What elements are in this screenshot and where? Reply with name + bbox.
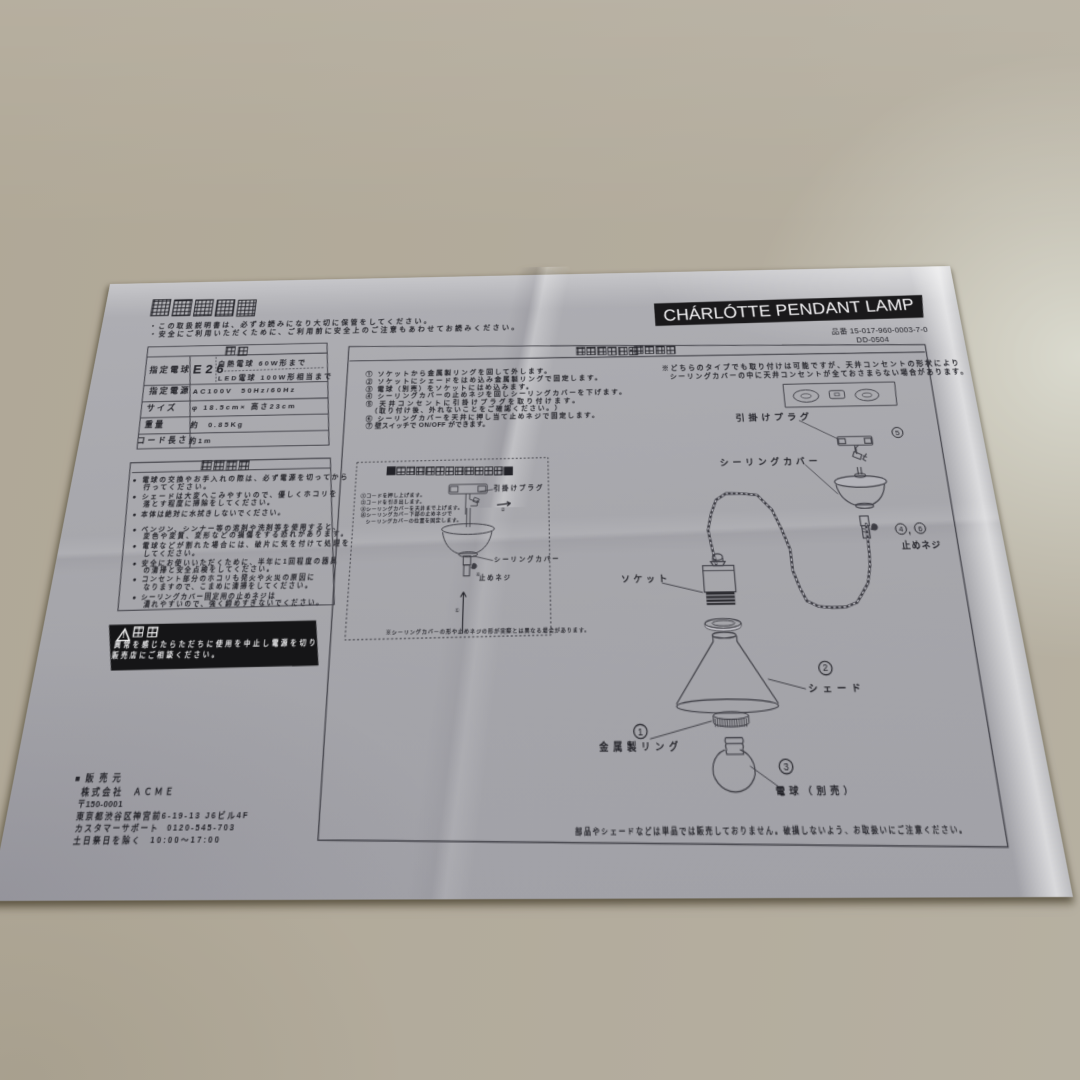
svg-text:指定電源: 指定電源 [149,385,192,396]
svg-text:部品やシェードなどは単品では販売しておりません。破損しないよ: 部品やシェードなどは単品では販売しておりません。破損しないよう、お取扱いにご注意… [575,824,968,837]
svg-text:● 本体は絶対に水拭きしないでください。: ● 本体は絶対に水拭きしないでください。 [132,507,287,519]
svg-text:金属製リング: 金属製リング [598,740,684,754]
svg-text:■販売元: ■販売元 [74,773,127,785]
svg-text:2: 2 [822,664,829,674]
svg-text:東京都渋谷区神宮前6-19-13 J6ビル4F: 東京都渋谷区神宮前6-19-13 J6ビル4F [75,809,250,822]
svg-text:サイズ: サイズ [146,402,178,413]
svg-text:約1m: 約1m [188,436,213,446]
svg-text:シェード: シェード [808,683,867,695]
svg-text:止めネジ: 止めネジ [901,539,943,551]
svg-text:φ 18.5cm× 高さ23cm: φ 18.5cm× 高さ23cm [191,402,297,413]
svg-text:● 電球の交換やお手入れの際は、必ず電源を切ってから: ● 電球の交換やお手入れの際は、必ず電源を切ってから [132,472,350,485]
svg-text:5: 5 [895,429,901,437]
svg-text:コード長さ: コード長さ [136,435,189,446]
svg-text:※シーリングカバーの形や止めネジの形が実際とは異なる場合があ: ※シーリングカバーの形や止めネジの形が実際とは異なる場合があります。 [386,626,591,635]
svg-text:してください。: してください。 [143,549,201,559]
svg-text:①: ① [455,607,460,614]
svg-text:3: 3 [783,763,790,774]
svg-text:株式会社 ＡＣＭＥ: 株式会社 ＡＣＭＥ [80,785,177,798]
svg-text:指定電球: 指定電球 [149,365,192,375]
svg-text:,: , [908,527,912,536]
svg-text:AC100V 50Hz/60Hz: AC100V 50Hz/60Hz [192,386,296,396]
svg-text:6: 6 [918,526,924,534]
svg-text:白熱電球 60W形まで: 白熱電球 60W形まで [218,358,308,368]
svg-text:カスタマーサポート 0120-545-703: カスタマーサポート 0120-545-703 [74,821,236,834]
svg-text:品番 15-017-960-0003-7-0: 品番 15-017-960-0003-7-0 [831,325,929,335]
svg-text:販売店にご相談ください。: 販売店にご相談ください。 [111,650,222,661]
svg-text:電球（別売）: 電球（別売） [775,783,858,797]
svg-text:シーリングカバーの位置を固定します。: シーリングカバーの位置を固定します。 [366,516,463,524]
svg-text:止めネジ: 止めネジ [479,573,512,582]
svg-text:約 0.85Kg: 約 0.85Kg [190,419,245,429]
svg-text:4: 4 [899,527,905,535]
svg-text:1: 1 [638,728,644,738]
svg-text:②: ② [501,507,506,513]
svg-text:シーリングカバー: シーリングカバー [494,555,561,565]
svg-text:土日祭日を除く 10:00～17:00: 土日祭日を除く 10:00～17:00 [72,833,222,846]
svg-text:〒150-0001: 〒150-0001 [76,799,124,810]
svg-text:DD-0504: DD-0504 [856,336,890,344]
svg-text:重量: 重量 [144,419,166,429]
svg-text:引掛けプラグ: 引掛けプラグ [494,483,545,493]
